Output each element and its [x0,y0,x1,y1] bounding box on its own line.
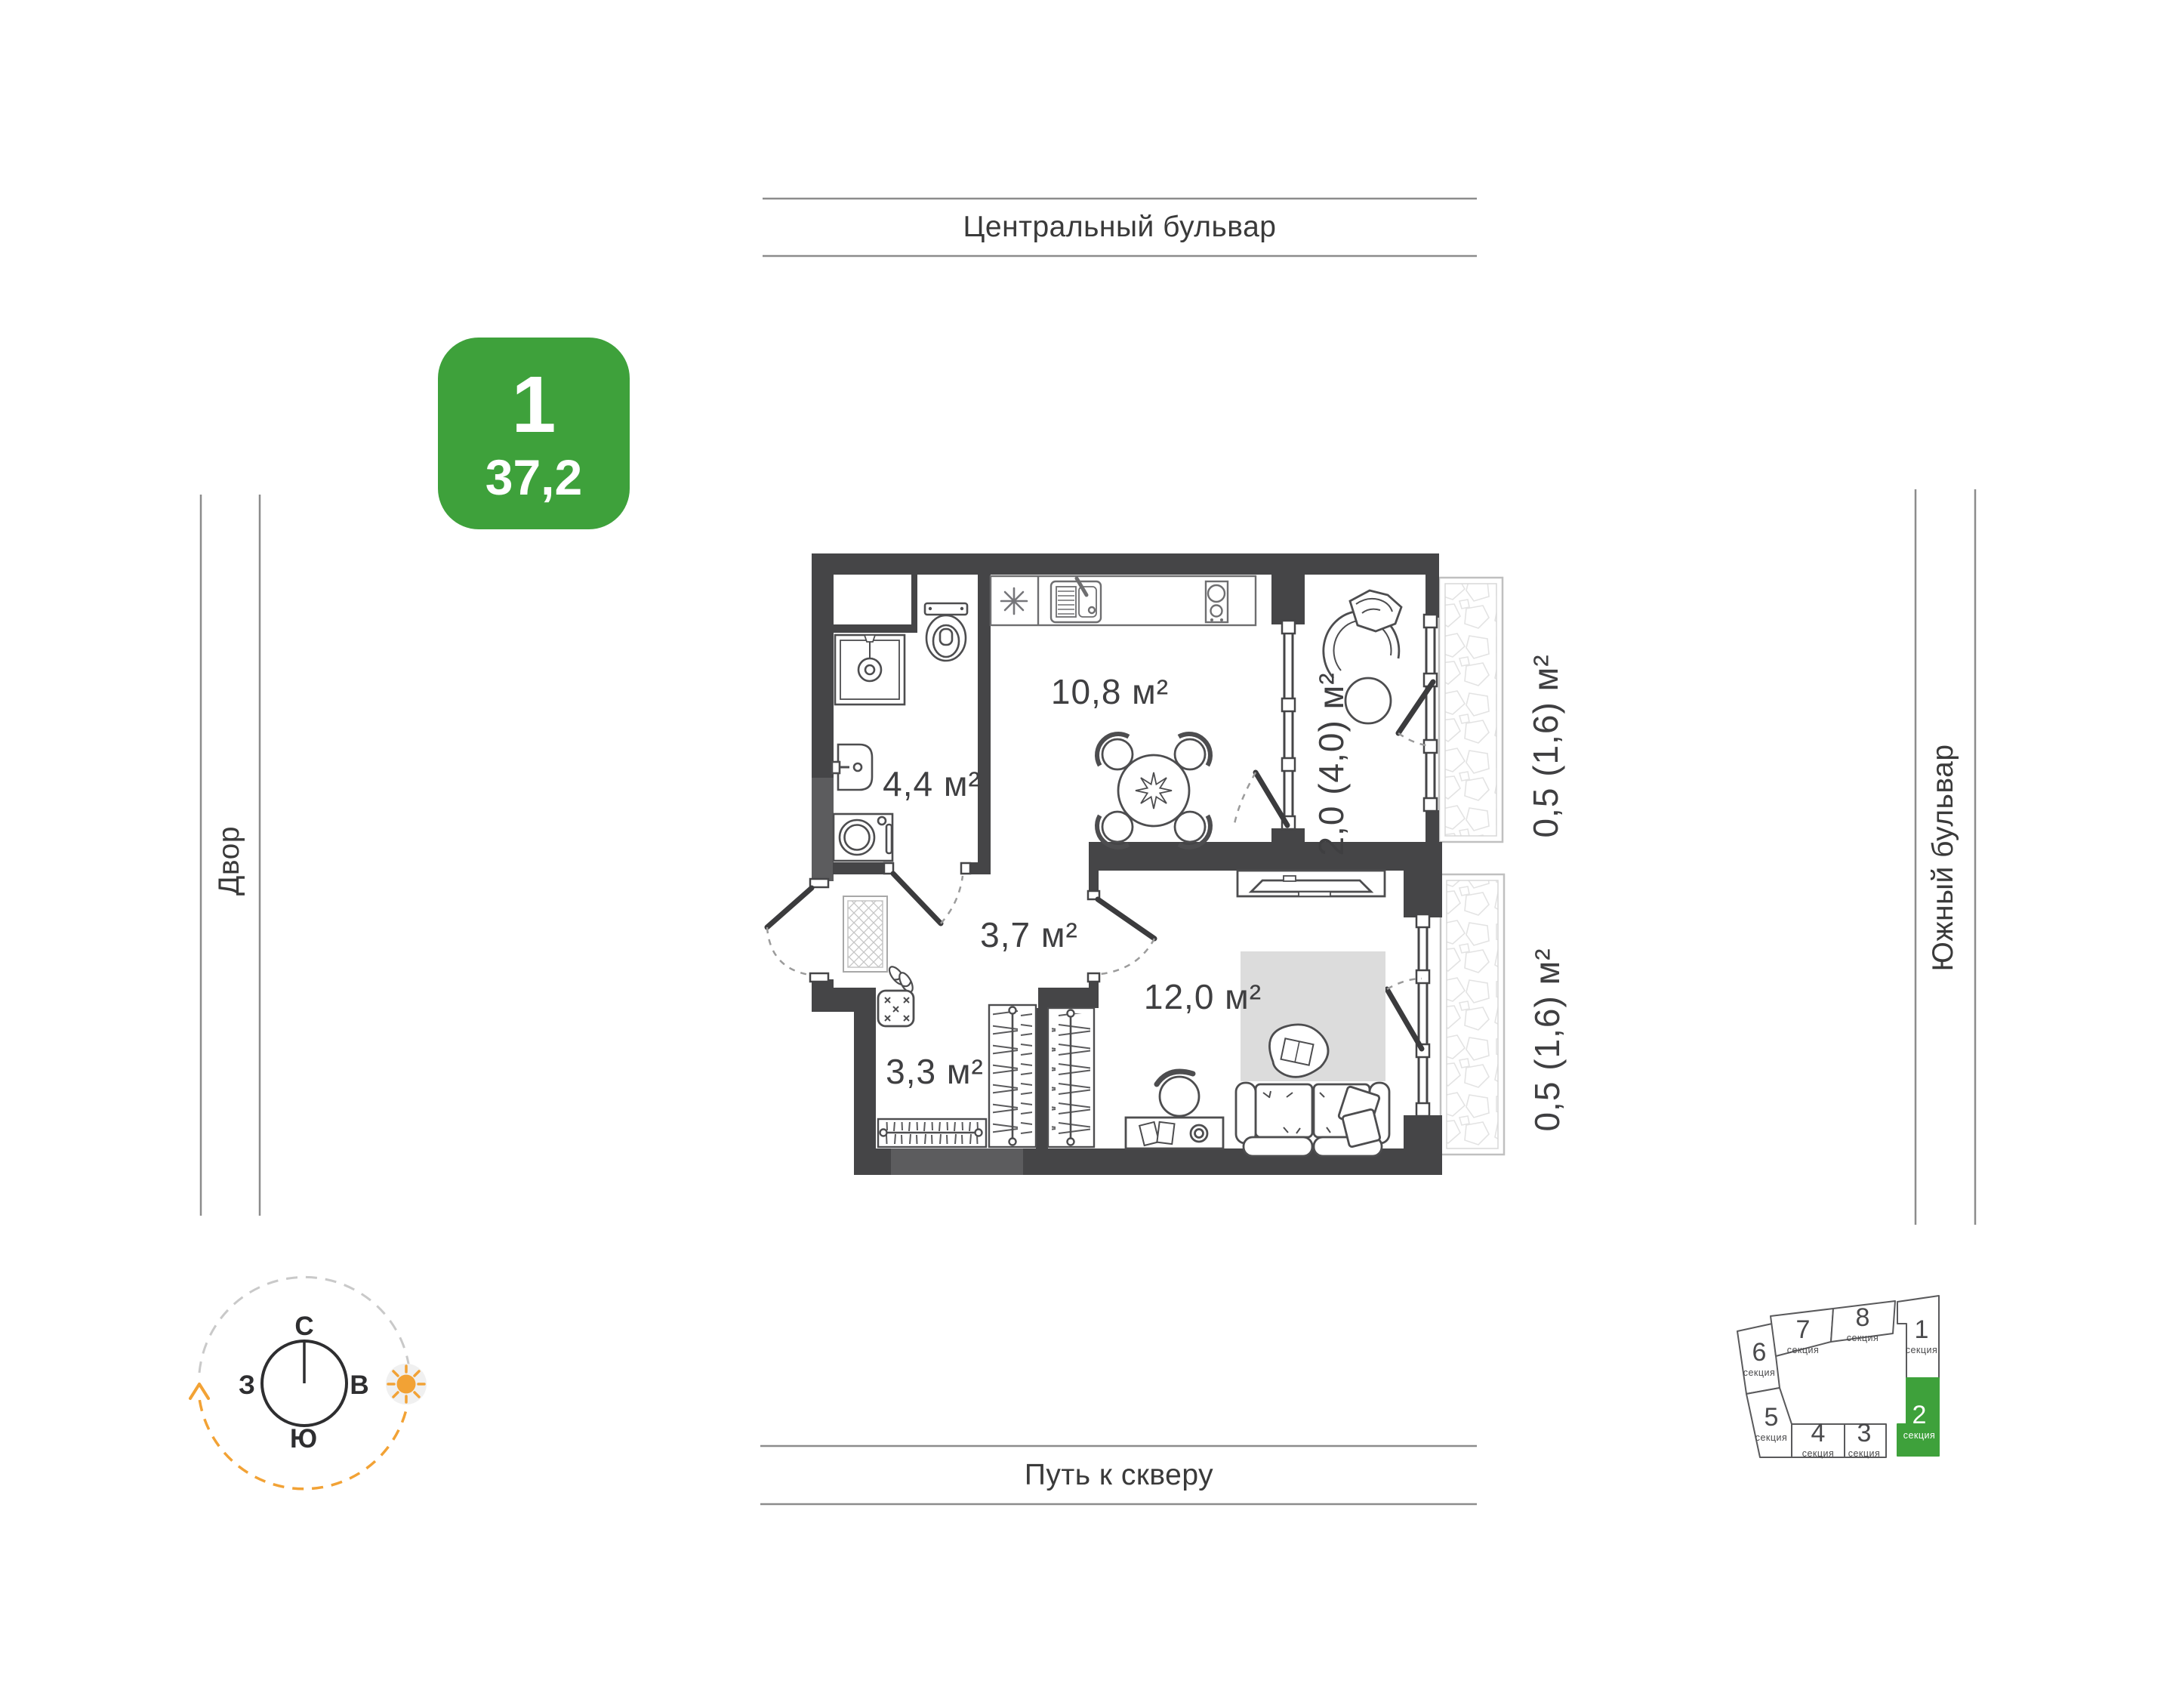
washing-machine-icon [834,814,892,861]
floorplan-page: Центральный бульвар Путь к скверу Двор Ю… [0,0,2176,1708]
compass-west: З [239,1370,255,1401]
masterplan-label-1: 1 секция [1906,1317,1938,1355]
apartment-badge: 1 37,2 [438,338,630,529]
bathroom-fixtures [832,603,967,861]
table-star-ornament [1136,772,1172,809]
room-label-balcony-bottom: 0,5 (1,6) м² [1527,948,1567,1131]
sun-icon [386,1364,427,1404]
masterplan-label-8: 8 секция [1847,1305,1879,1343]
compass-south: Ю [290,1424,317,1454]
room-label-bathroom: 4,4 м² [883,763,981,804]
tv-stand-icon [1237,871,1385,896]
masterplan-label-6: 6 секция [1743,1340,1776,1378]
sink-icon [832,745,872,790]
sofa-icon [1236,1083,1389,1156]
dining-set [1089,726,1219,856]
street-label-left: Двор [213,826,246,896]
street-label-top: Центральный бульвар [963,211,1277,244]
wardrobe-icon [989,1005,1036,1147]
desk-icon [1126,1118,1223,1148]
masterplan-label-3: 3 секция [1848,1420,1881,1459]
window-loggia-balcony [1424,615,1437,811]
compass-north: С [294,1312,313,1342]
kitchen-fixtures [991,576,1256,625]
compass-arrow [190,1384,208,1398]
street-label-right: Южный бульвар [1927,744,1960,971]
badge-rooms-count: 1 [512,365,556,445]
room-label-loggia: 2,0 (4,0) м² [1311,672,1352,856]
loggia-balcony-door-leaf [1398,682,1433,733]
room-label-wardrobe: 3,3 м² [886,1051,984,1092]
balcony-top [1439,578,1503,842]
window-living-balcony [1416,914,1429,1116]
entrance-door-leaf [767,888,812,927]
masterplan-label-5: 5 секция [1755,1404,1788,1443]
compass [190,1277,427,1488]
vent-icon [1001,588,1027,614]
stove-icon [1206,581,1228,622]
masterplan-label-4: 4 секция [1802,1420,1835,1459]
masterplan-label-2: 2 секция [1903,1402,1936,1441]
street-label-bottom: Путь к скверу [1025,1459,1213,1492]
pouf-icon [878,991,914,1026]
room-label-kitchen: 10,8 м² [1051,671,1169,712]
wardrobe-icon [1048,1008,1094,1147]
door-mat-icon [843,896,887,972]
bathroom-door-leaf [893,874,941,923]
shoes-icon [886,964,915,994]
shower-icon [835,635,905,704]
hanger-rail-icon [878,1119,986,1147]
living-door-leaf [1098,899,1154,939]
armchair-icon [1324,590,1401,678]
compass-east: В [350,1370,368,1401]
room-label-living: 12,0 м² [1144,976,1262,1017]
coffee-table-icon [1269,1025,1328,1077]
office-chair-icon [1157,1071,1199,1116]
loggia-door-leaf [1256,772,1287,825]
kitchen-sink-icon [1051,578,1101,622]
room-label-balcony-top: 0,5 (1,6) м² [1525,654,1566,837]
badge-total-area: 37,2 [485,452,582,502]
window-kitchen-loggia [1282,621,1295,829]
room-label-hallway: 3,7 м² [980,914,1078,955]
balcony-bottom [1441,874,1504,1155]
toilet-icon [925,603,967,661]
loggia-table-icon [1345,678,1391,723]
masterplan-label-7: 7 секция [1787,1317,1820,1355]
living-balcony-door-leaf [1387,989,1422,1049]
